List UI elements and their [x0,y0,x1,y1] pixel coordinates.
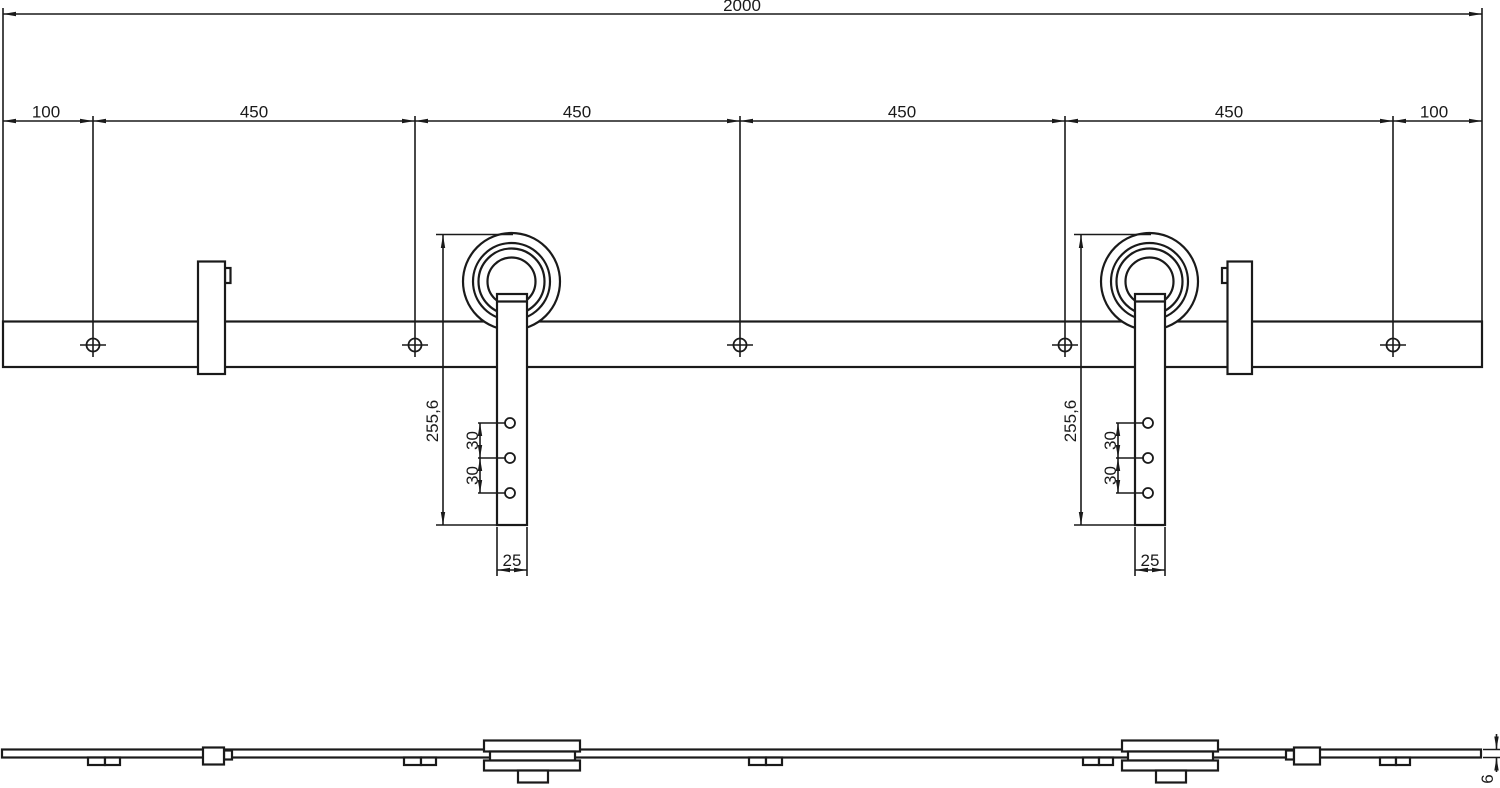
washer [1099,758,1113,766]
strap-body-right [1135,294,1165,525]
dim-label-hole-spacing-upper: 30 [463,431,482,450]
washer [766,758,782,766]
washer [1380,758,1396,766]
door-stop-knob-plan [1286,751,1294,760]
roller-flange-bottom [1122,761,1218,771]
door-stop-body-left [198,262,225,375]
dim-label-segment-1: 450 [240,103,268,122]
strap-plan [1156,771,1186,783]
door-stop-body-right [1228,262,1253,375]
plan-view: 6 [2,734,1500,784]
dim-label-hanger-height: 255,6 [1061,400,1080,443]
dim-label-segment-0: 100 [32,103,60,122]
washer [749,758,766,766]
door-stop-left [198,262,231,375]
washer-pair-5 [1380,758,1410,766]
washer [1083,758,1099,766]
roller-flange-bottom [484,761,580,771]
roller-flange-top [1122,741,1218,752]
dim-label-segment-2: 450 [563,103,591,122]
washer [1396,758,1410,766]
door-stop-right-plan [1286,748,1320,765]
roller-hub [490,752,575,761]
dim-label-hanger-height: 255,6 [423,400,442,443]
roller-hub [1128,752,1213,761]
door-stop-body-plan [203,748,224,765]
strap-body-left [497,294,527,525]
dim-label-segment-4: 450 [1215,103,1243,122]
mounting-holes [80,339,1406,352]
dim-label-rail-thickness: 6 [1478,774,1497,783]
door-stop-left-plan [203,748,232,765]
strap-plan [518,771,548,783]
hanger-strap-right [1135,294,1165,525]
dim-label-segment-3: 450 [888,103,916,122]
roller-left-plan [484,741,580,783]
washer [105,758,120,766]
washer-pair-3 [749,758,782,766]
dim-label-overall: 2000 [723,0,761,15]
roller-right-plan [1122,741,1218,783]
roller-flange-top [484,741,580,752]
washer-pair-4 [1083,758,1113,766]
washer [404,758,421,766]
rail-thickness-dimension: 6 [1478,734,1500,784]
dim-label-strap-width: 25 [503,551,522,570]
washer [88,758,105,766]
front-view: 2000 100 450 450 450 450 100 [3,0,1482,576]
door-stop-knob-plan [224,751,232,760]
washer-pair-2 [404,758,436,766]
washer-pair-1 [88,758,120,766]
dim-label-hole-spacing-upper: 30 [1101,431,1120,450]
dim-label-segment-5: 100 [1420,103,1448,122]
dim-label-hole-spacing-lower: 30 [1101,466,1120,485]
door-stop-body-plan [1294,748,1320,765]
door-stop-right [1222,262,1252,375]
dim-label-hole-spacing-lower: 30 [463,466,482,485]
technical-drawing: 2000 100 450 450 450 450 100 [0,0,1500,788]
washer [421,758,436,766]
hanger-strap-left [497,294,527,525]
dim-label-strap-width: 25 [1141,551,1160,570]
